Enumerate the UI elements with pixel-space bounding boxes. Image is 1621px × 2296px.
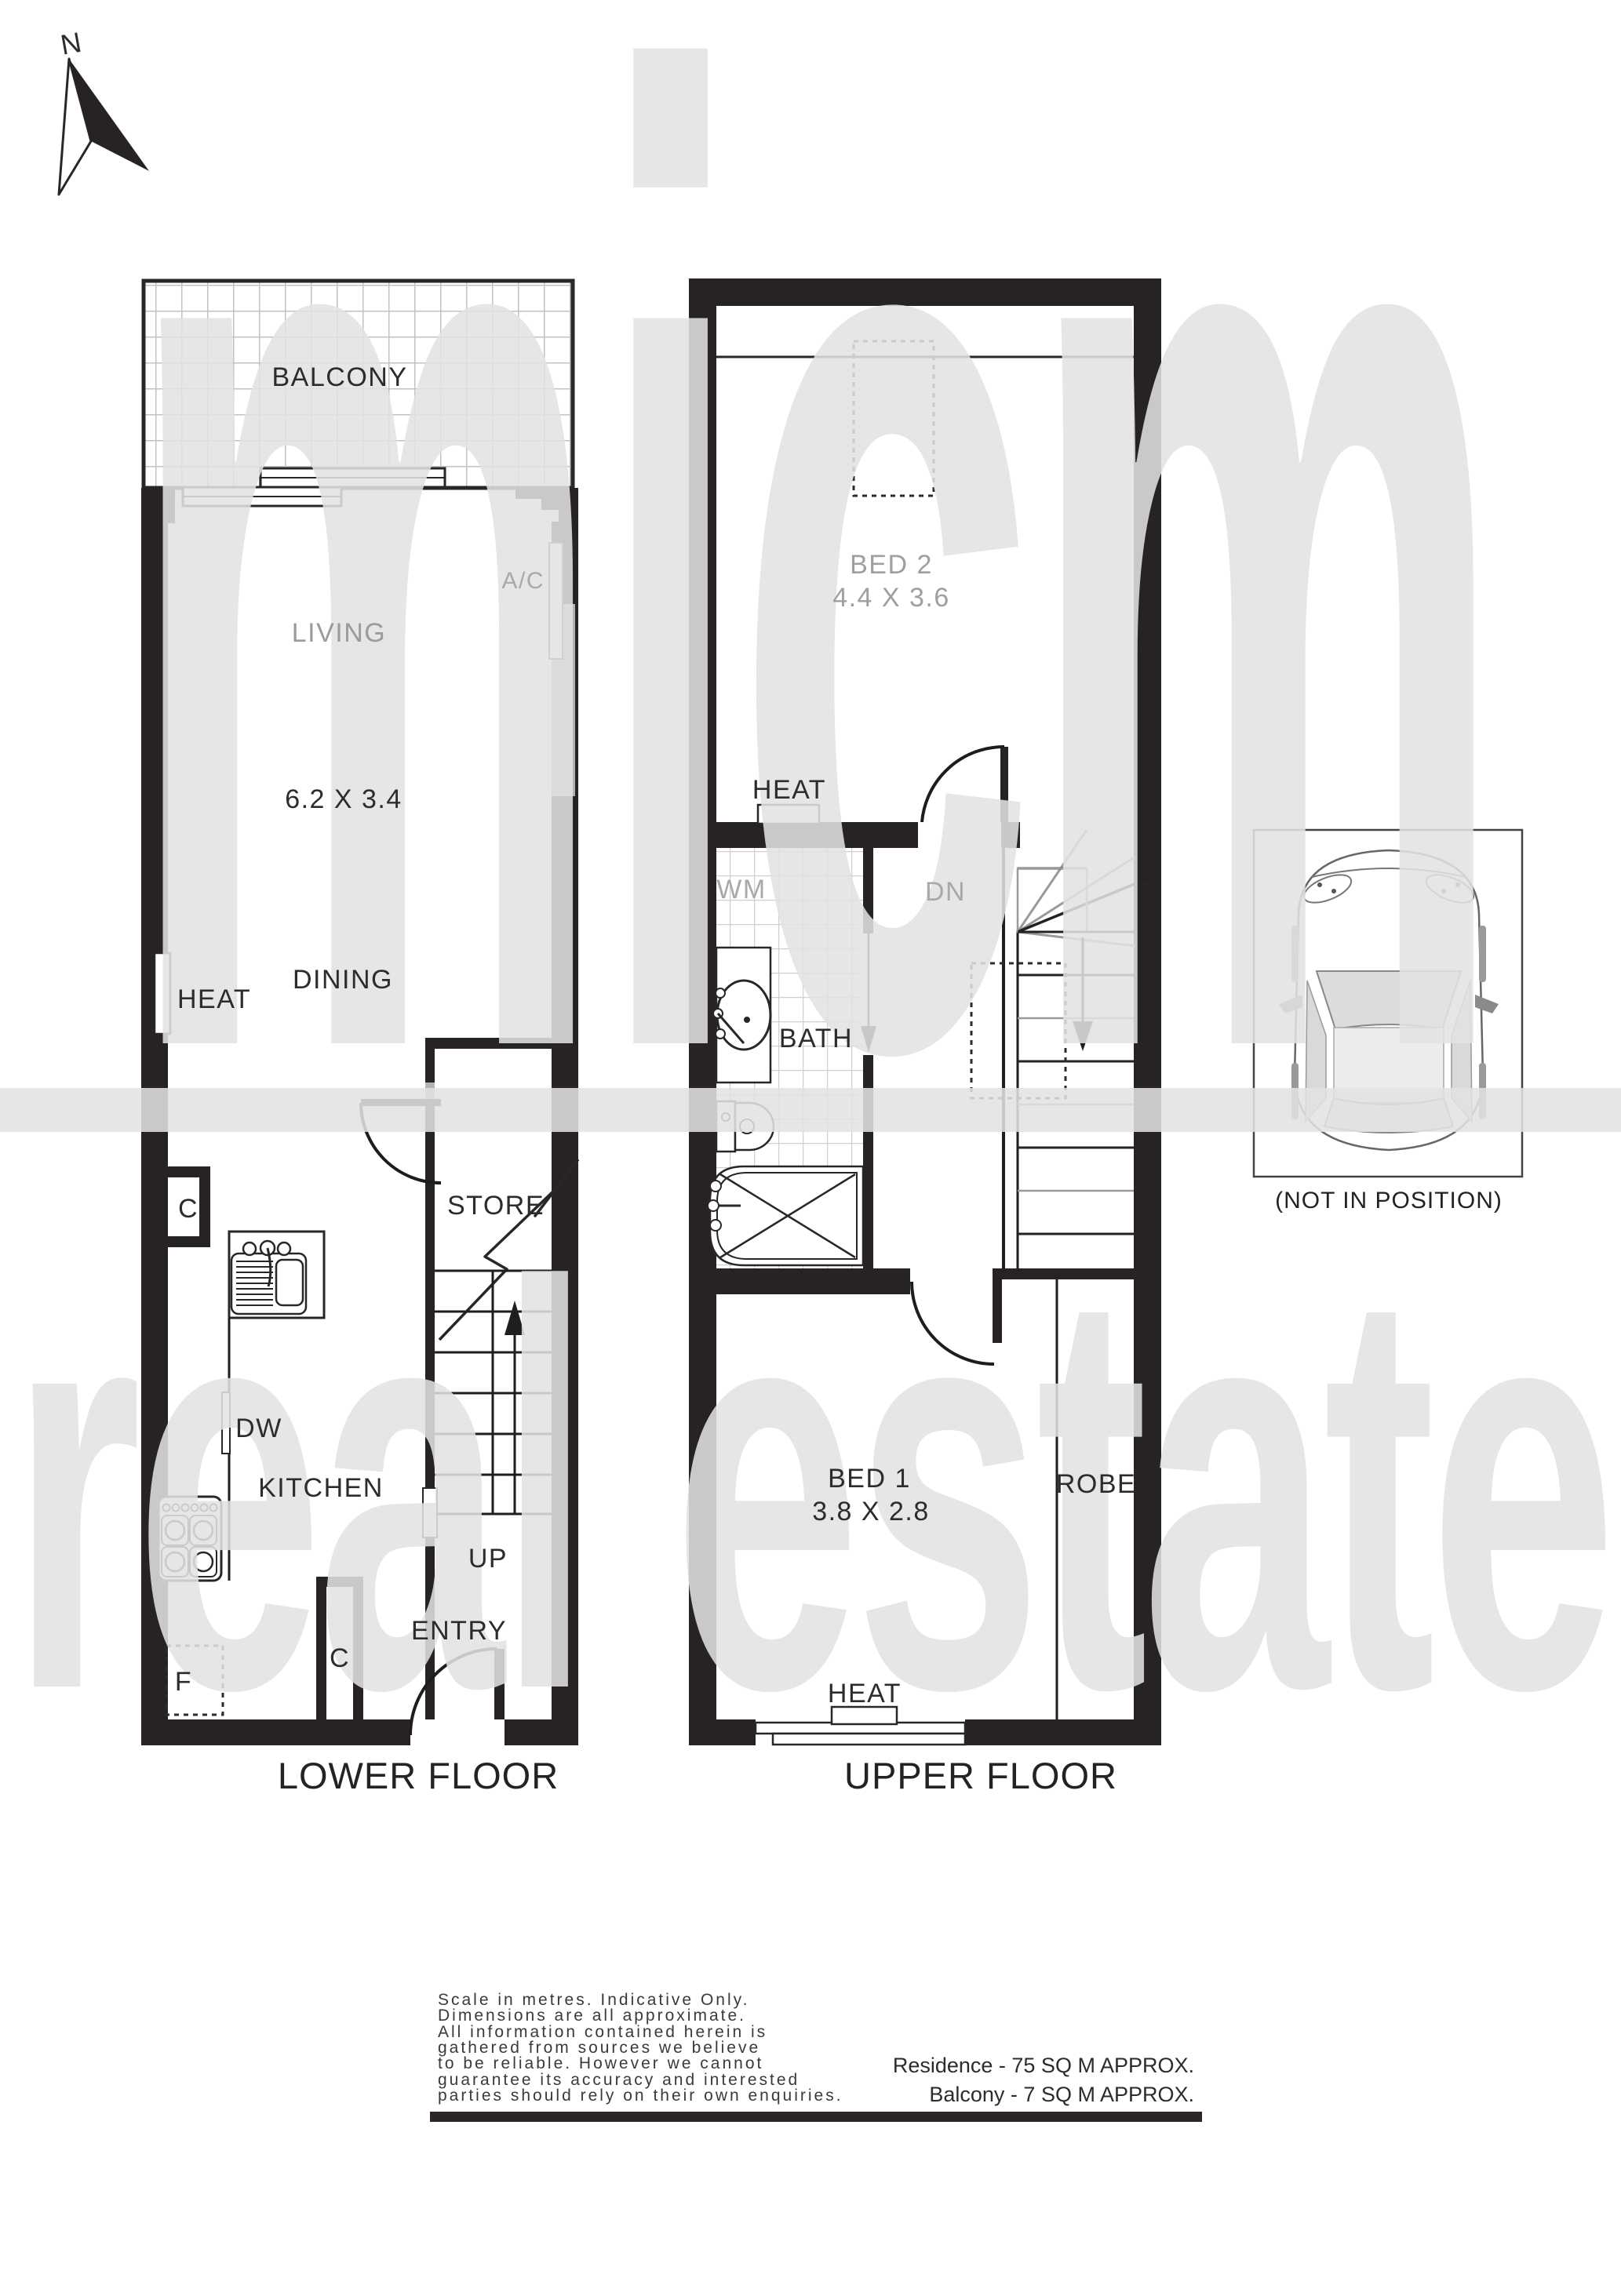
car-space-note: (NOT IN POSITION): [1275, 1188, 1503, 1213]
wm-label: WM: [716, 875, 766, 904]
balcony-label: BALCONY: [272, 362, 408, 392]
living-dims: 6.2 X 3.4: [285, 784, 403, 814]
heat-lower-label: HEAT: [177, 984, 251, 1014]
entry-label: ENTRY: [411, 1616, 507, 1646]
dw-label: DW: [235, 1414, 282, 1443]
bed1-dims: 3.8 X 2.8: [812, 1497, 930, 1526]
store-label: STORE: [447, 1191, 545, 1221]
floorplan-svg: N: [0, 0, 1621, 2296]
living-label: LIVING: [292, 618, 386, 648]
bath-label: BATH: [779, 1024, 853, 1053]
kitchen-label: KITCHEN: [258, 1473, 384, 1503]
watermark-word1: micm: [125, 0, 1495, 1334]
dn-label: DN: [925, 877, 966, 907]
bed1-label: BED 1: [828, 1464, 911, 1494]
footer-divider-bar: [430, 2112, 1202, 2122]
watermark-bar: [0, 1088, 1621, 1132]
watermark-word2: real estate: [10, 1168, 1611, 1809]
heat-upper-bottom-label: HEAT: [828, 1679, 902, 1708]
disclaimer-line: to be reliable. However we cannot: [438, 2054, 763, 2072]
bed2-dims: 4.4 X 3.6: [832, 583, 950, 613]
upper-floor-title: UPPER FLOOR: [844, 1755, 1117, 1796]
closet2-label: C: [330, 1643, 350, 1673]
ac-label: A/C: [501, 568, 545, 594]
lower-floor-title: LOWER FLOOR: [278, 1755, 559, 1796]
closet1-label: C: [178, 1194, 199, 1224]
robe-label: ROBE: [1056, 1469, 1136, 1499]
disclaimer-block: Scale in metres. Indicative Only. Dimens…: [438, 1991, 843, 2105]
bed2-label: BED 2: [850, 550, 933, 580]
balcony-area-label: Balcony - 7 SQ M APPROX.: [929, 2083, 1194, 2106]
up-label: UP: [468, 1544, 508, 1574]
floorplan-page: N: [0, 0, 1621, 2296]
fridge-label: F: [175, 1667, 192, 1697]
disclaimer-line: Dimensions are all approximate.: [438, 2007, 746, 2025]
watermark: micm real estate: [0, 0, 1621, 1809]
north-label: N: [58, 26, 84, 61]
residence-area-label: Residence - 75 SQ M APPROX.: [893, 2054, 1194, 2077]
disclaimer-line: parties should rely on their own enquiri…: [438, 2087, 843, 2105]
heat-upper-top-label: HEAT: [752, 775, 826, 805]
dining-label: DINING: [293, 965, 393, 995]
